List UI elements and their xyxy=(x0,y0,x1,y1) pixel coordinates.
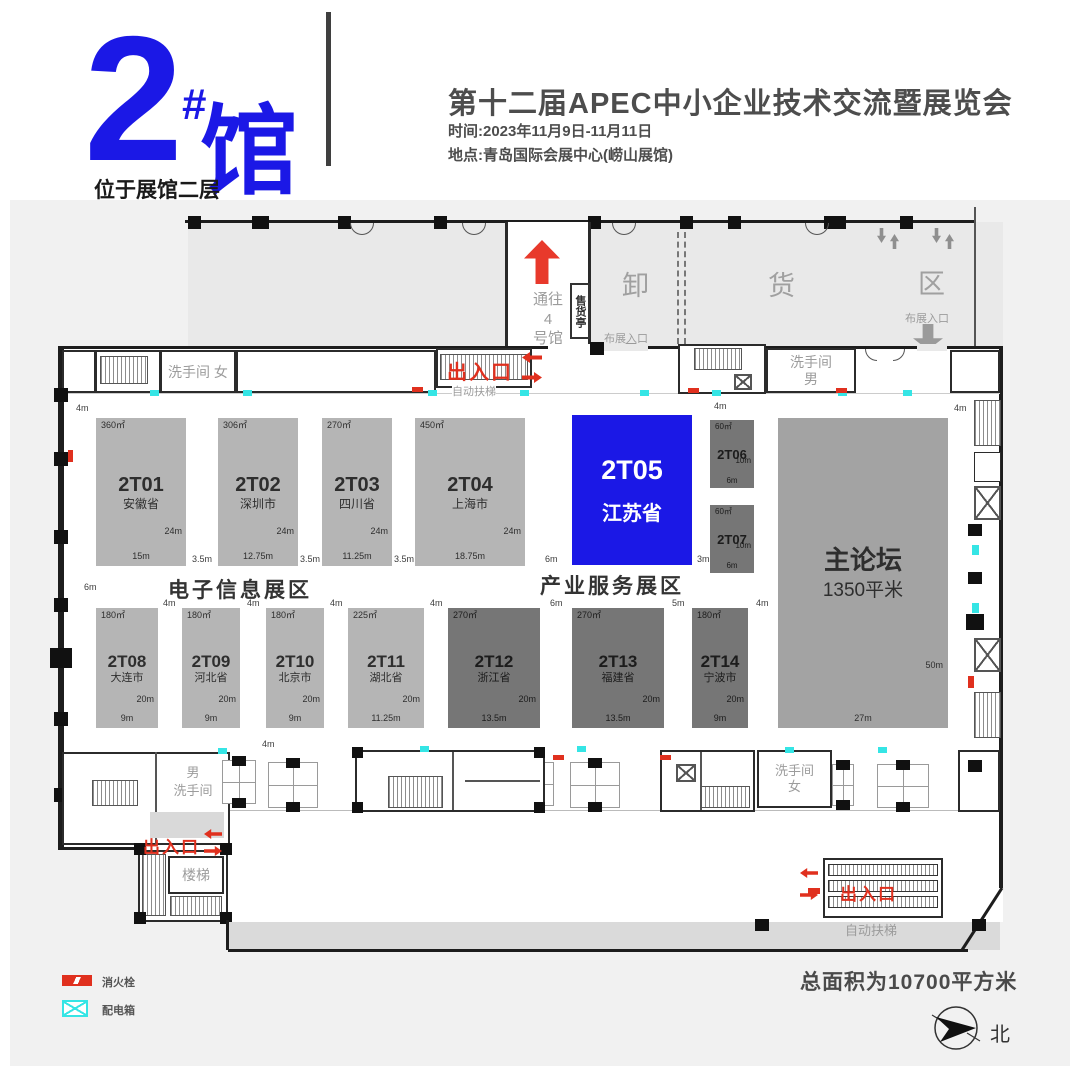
floor-line xyxy=(228,810,1000,811)
door-gap xyxy=(917,344,947,351)
setup-entrance-right-label: 布展入口 xyxy=(905,310,949,326)
power-box-marker xyxy=(420,746,429,752)
booth-id: 2T01 xyxy=(118,475,164,495)
power-box-marker xyxy=(150,390,159,396)
event-venue: 地点:青岛国际会展中心(崂山展馆) xyxy=(448,144,673,165)
stairs-hatch xyxy=(92,780,138,806)
column-block xyxy=(252,216,269,229)
column-block xyxy=(54,598,68,612)
gap-dim: 6m xyxy=(550,599,563,608)
booth-depth-dim: 20m xyxy=(136,695,154,704)
restroom-female-line1: 洗手间 xyxy=(775,763,814,779)
booth-name: 安徽省 xyxy=(123,498,159,510)
booth-depth-dim: 20m xyxy=(302,695,320,704)
stairs-hatch xyxy=(974,692,1001,738)
fire-hydrant-marker xyxy=(553,755,564,760)
booth-name: 宁波市 xyxy=(704,673,737,684)
booth-depth-dim: 10m xyxy=(735,456,751,465)
booth-name: 大连市 xyxy=(111,673,144,684)
gap-dim: 4m xyxy=(262,740,275,749)
booth-id: 2T13 xyxy=(599,653,638,670)
gap-dim: 4m xyxy=(714,402,727,411)
booth-depth-dim: 20m xyxy=(518,695,536,704)
gap-dim: 4m xyxy=(247,599,260,608)
power-box-marker xyxy=(243,390,252,396)
booth-name: 北京市 xyxy=(279,673,312,684)
booth-2T10: 180㎡ 2T10 北京市 20m 9m xyxy=(266,608,324,728)
wall-segment xyxy=(228,949,968,952)
booth-2T09: 180㎡ 2T09 河北省 20m 9m xyxy=(182,608,240,728)
page-title: 第十二届APEC中小企业技术交流暨展览会 xyxy=(448,80,1013,122)
column-cluster xyxy=(877,764,929,808)
column-block xyxy=(54,452,68,466)
column-block xyxy=(755,919,769,931)
exit-label-bottom-left: 出入口 xyxy=(143,833,200,858)
booth-2T11: 225㎡ 2T11 湖北省 20m 11.25m xyxy=(348,608,424,728)
restroom-male-top-line2: 男 xyxy=(804,371,818,387)
power-box-marker xyxy=(218,748,227,754)
column-block xyxy=(352,802,363,813)
booth-id: 2T14 xyxy=(701,653,740,670)
booth-2T12: 270㎡ 2T12 浙江省 20m 13.5m xyxy=(448,608,540,728)
escalator-hatch xyxy=(828,864,938,876)
booth-depth-dim: 24m xyxy=(370,527,388,536)
power-box-marker xyxy=(640,390,649,396)
column-block xyxy=(680,216,693,229)
gap-dim: 4m xyxy=(756,599,769,608)
booth-name: 深圳市 xyxy=(240,498,276,510)
restroom-male-line1: 男 xyxy=(160,764,226,782)
booth-name: 上海市 xyxy=(452,498,488,510)
booth-2T04: 450㎡ 2T04 上海市 24m 18.75m xyxy=(415,418,525,566)
power-box-marker xyxy=(577,746,586,752)
booth-width-dim: 15m xyxy=(96,552,186,561)
elevator-icon xyxy=(974,486,1001,520)
outside-area xyxy=(62,850,139,922)
gap-dim: 3.5m xyxy=(300,555,320,564)
column-block xyxy=(188,216,201,229)
column-cluster xyxy=(570,762,620,808)
booth-width-dim: 6m xyxy=(710,477,754,485)
power-box-legend-icon xyxy=(62,1000,88,1017)
stairs-hatch xyxy=(388,776,443,808)
column-block xyxy=(534,747,545,758)
booth-width-dim: 9m xyxy=(266,714,324,723)
stairs-room: 楼梯 xyxy=(168,856,224,894)
stairs-hatch xyxy=(170,896,222,916)
booth-width-dim: 6m xyxy=(710,562,754,570)
dashed-lane-line xyxy=(677,232,679,344)
column-block xyxy=(50,648,72,668)
stairs-hatch xyxy=(974,400,1001,446)
power-box-marker xyxy=(428,390,437,396)
column-block xyxy=(968,760,982,772)
gap-dim: 4m xyxy=(330,599,343,608)
booth-width-dim: 13.5m xyxy=(572,714,664,723)
kiosk-label: 售货亭 xyxy=(570,283,590,339)
gap-dim: 3.5m xyxy=(394,555,414,564)
wall-segment xyxy=(700,752,702,810)
wall-segment xyxy=(974,207,976,348)
column-cluster xyxy=(222,760,256,804)
booth-width-dim: 11.25m xyxy=(322,552,392,561)
booth-id: 2T04 xyxy=(447,475,493,495)
booth-name: 河北省 xyxy=(195,673,228,684)
power-box-marker xyxy=(520,390,529,396)
elevator-icon xyxy=(974,638,1001,672)
booth-name: 湖北省 xyxy=(370,673,403,684)
hall-number: 2 xyxy=(84,22,177,175)
service-room xyxy=(236,350,436,393)
unloading-char-1: 卸 xyxy=(622,264,649,303)
column-block xyxy=(54,530,68,544)
booth-2T06: 60㎡ 2T06 10m 6m xyxy=(710,420,754,488)
fire-hydrant-marker xyxy=(412,387,423,392)
booth-depth-dim: 20m xyxy=(642,695,660,704)
booth-2T14: 180㎡ 2T14 宁波市 20m 9m xyxy=(692,608,748,728)
column-block xyxy=(352,747,363,758)
booth-2T07: 60㎡ 2T07 10m 6m xyxy=(710,505,754,573)
column-block xyxy=(900,216,913,229)
booth-depth-dim: 20m xyxy=(726,695,744,704)
column-block xyxy=(54,388,68,402)
booth-id: 2T12 xyxy=(475,653,514,670)
event-time: 时间:2023年11月9日-11月11日 xyxy=(448,120,652,141)
fire-hydrant-marker xyxy=(968,676,974,688)
wall-segment xyxy=(226,920,229,950)
booth-id: 2T09 xyxy=(192,653,231,670)
wall-segment xyxy=(60,847,140,850)
stairs-hatch xyxy=(100,356,148,384)
door-gap xyxy=(602,344,648,351)
header-divider xyxy=(326,12,331,166)
fire-hydrant-marker xyxy=(660,755,671,760)
zone-electronics-label: 电子信息展区 xyxy=(168,574,312,604)
column-block xyxy=(220,843,232,855)
fire-hydrant-marker xyxy=(68,450,73,462)
restroom-male-line2: 洗手间 xyxy=(160,782,226,800)
escalator-bottom-label: 自动扶梯 xyxy=(845,920,897,939)
restroom-female-bottom: 洗手间 女 xyxy=(757,750,832,808)
service-room xyxy=(62,350,96,393)
gap-dim: 5m xyxy=(672,599,685,608)
floor-line xyxy=(62,393,1000,394)
service-room xyxy=(950,350,1000,393)
wall-segment xyxy=(465,780,540,782)
booth-depth-dim: 24m xyxy=(164,527,182,536)
column-block xyxy=(972,919,986,931)
restroom-male-top-line1: 洗手间 xyxy=(790,354,832,370)
booth-name: 浙江省 xyxy=(478,673,511,684)
column-block xyxy=(968,524,982,536)
column-block xyxy=(968,572,982,584)
main-forum: 主论坛 1350平米 50m 27m xyxy=(778,418,948,728)
power-box-marker xyxy=(972,545,979,555)
column-block xyxy=(534,802,545,813)
booth-width-dim: 9m xyxy=(692,714,748,723)
booth-width-dim: 9m xyxy=(182,714,240,723)
booth-id: 2T11 xyxy=(367,653,405,670)
service-room xyxy=(974,452,1001,482)
fire-hydrant-legend-icon xyxy=(62,975,92,986)
power-box-marker xyxy=(972,603,979,613)
gap-dim: 3.5m xyxy=(192,555,212,564)
column-block xyxy=(434,216,447,229)
column-block xyxy=(590,342,604,355)
power-box-legend-label: 配电箱 xyxy=(102,1002,135,1018)
booth-2T03: 270㎡ 2T03 四川省 24m 11.25m xyxy=(322,418,392,566)
column-block xyxy=(54,712,68,726)
booth-id: 2T08 xyxy=(108,653,147,670)
exit-label-top: 出入口 xyxy=(447,356,513,385)
booth-depth-dim: 24m xyxy=(503,527,521,536)
booth-width-dim: 11.25m xyxy=(348,714,424,723)
column-cluster xyxy=(268,762,318,808)
elevator-icon xyxy=(676,764,696,782)
gap-dim: 6m xyxy=(84,583,97,592)
booth-depth-dim: 20m xyxy=(402,695,420,704)
booth-name: 四川省 xyxy=(339,498,375,510)
dashed-lane-line xyxy=(684,232,686,344)
wall-segment xyxy=(452,752,454,810)
escalator-top-label: 自动扶梯 xyxy=(452,383,496,399)
unloading-char-3: 区 xyxy=(918,262,945,301)
booth-id: 2T03 xyxy=(334,475,380,495)
north-label: 北 xyxy=(990,1018,1010,1047)
restroom-female-line2: 女 xyxy=(788,779,801,795)
gap-dim: 4m xyxy=(76,404,89,413)
fire-hydrant-marker xyxy=(688,388,699,393)
restroom-female-top: 洗手间 女 xyxy=(160,350,236,393)
booth-2T08: 180㎡ 2T08 大连市 20m 9m xyxy=(96,608,158,728)
power-box-marker xyxy=(785,747,794,753)
booth-2T02: 306㎡ 2T02 深圳市 24m 12.75m xyxy=(218,418,298,566)
elevator-icon xyxy=(734,374,752,390)
booth-id: 2T02 xyxy=(235,475,281,495)
booth-depth-dim: 20m xyxy=(218,695,236,704)
forum-width-dim: 27m xyxy=(778,714,948,723)
booth-width-dim: 18.75m xyxy=(415,552,525,561)
restroom-male-bottom: 男 洗手间 xyxy=(160,764,226,800)
power-box-marker xyxy=(903,390,912,396)
forum-name: 主论坛 xyxy=(824,547,902,573)
compass-icon xyxy=(928,1000,984,1056)
zone-industry-label: 产业服务展区 xyxy=(540,570,684,600)
column-block xyxy=(728,216,741,229)
stairs-hatch xyxy=(694,348,742,370)
booth-id: 2T05 xyxy=(601,457,663,484)
gap-dim: 4m xyxy=(430,599,443,608)
fire-hydrant-marker xyxy=(836,388,847,393)
booth-name: 江苏省 xyxy=(602,504,662,524)
booth-name: 福建省 xyxy=(602,673,635,684)
power-box-marker xyxy=(878,747,887,753)
column-block xyxy=(966,614,984,630)
forum-depth-dim: 50m xyxy=(925,660,943,670)
column-cluster xyxy=(832,764,854,806)
booth-2T13: 270㎡ 2T13 福建省 20m 13.5m xyxy=(572,608,664,728)
column-block xyxy=(134,912,146,924)
forum-area: 1350平米 xyxy=(823,581,903,600)
power-box-marker xyxy=(712,390,721,396)
booth-2T05-highlighted: 2T05 江苏省 xyxy=(572,415,692,565)
restroom-female-top-label: 洗手间 女 xyxy=(168,362,228,382)
door-gap xyxy=(548,344,592,351)
gap-dim: 3m xyxy=(697,555,710,564)
stairs-hatch xyxy=(700,786,750,808)
booth-depth-dim: 24m xyxy=(276,527,294,536)
booth-id: 2T10 xyxy=(276,653,315,670)
booth-width-dim: 13.5m xyxy=(448,714,540,723)
floorplan-poster: 2 # 馆 位于展馆二层 第十二届APEC中小企业技术交流暨展览会 时间:202… xyxy=(0,0,1080,1075)
gap-dim: 4m xyxy=(163,599,176,608)
unloading-char-2: 货 xyxy=(768,264,795,303)
booth-depth-dim: 10m xyxy=(735,541,751,550)
gap-dim: 4m xyxy=(954,404,967,413)
total-area-label: 总面积为10700平方米 xyxy=(800,966,1017,996)
booth-width-dim: 9m xyxy=(96,714,158,723)
restroom-male-top: 洗手间 男 xyxy=(766,348,856,393)
booth-width-dim: 12.75m xyxy=(218,552,298,561)
exit-label-bottom-right: 出入口 xyxy=(840,880,897,905)
stairs-label: 楼梯 xyxy=(182,865,210,885)
gap-dim: 6m xyxy=(545,555,558,564)
booth-2T01: 360㎡ 2T01 安徽省 24m 15m xyxy=(96,418,186,566)
stairs-hatch xyxy=(142,854,166,916)
fire-hydrant-legend-label: 消火栓 xyxy=(102,974,135,990)
